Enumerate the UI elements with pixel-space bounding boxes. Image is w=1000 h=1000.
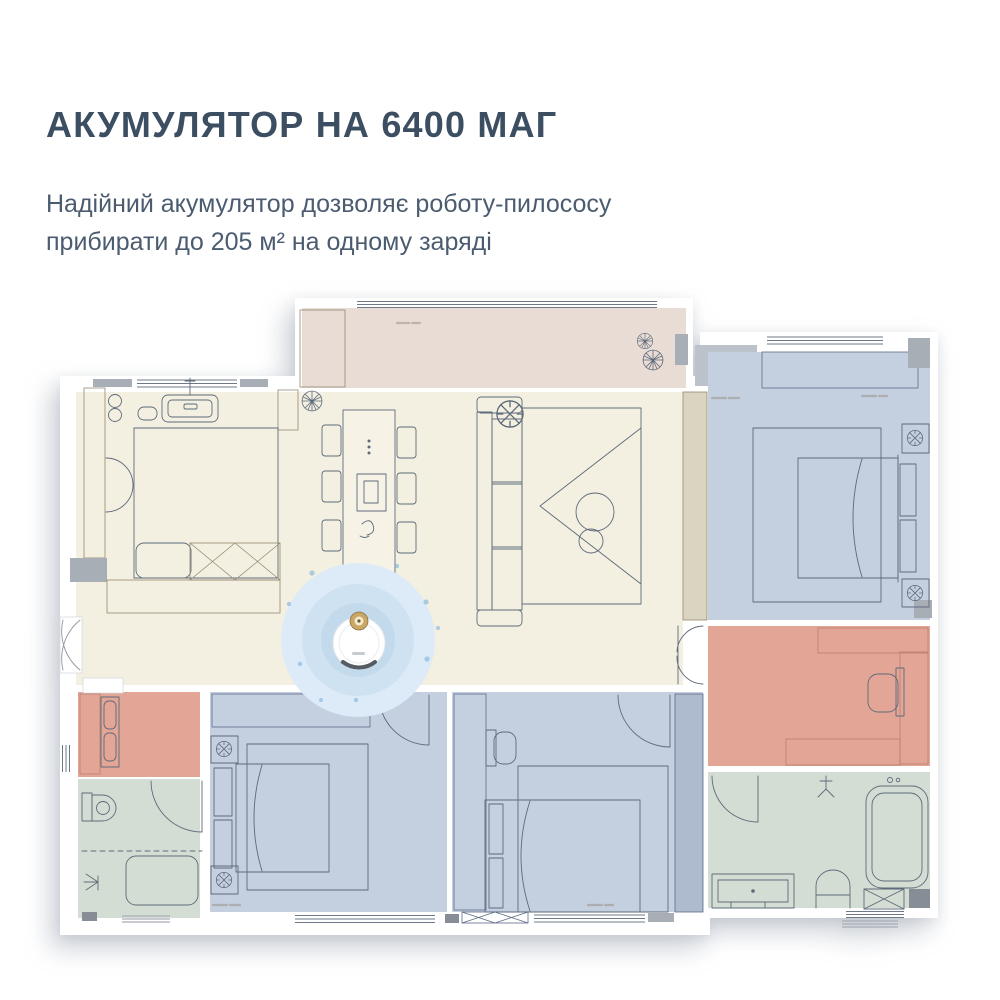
robot-logo <box>352 652 365 655</box>
plant-icon <box>643 350 663 370</box>
plan <box>60 298 938 935</box>
ceiling-light-icon <box>497 401 523 427</box>
lamp-icon <box>907 585 922 600</box>
room-bedroom-second <box>210 692 447 923</box>
entrance-door <box>60 617 82 673</box>
wall-niche <box>83 678 123 693</box>
room-bedroom-third <box>445 692 703 923</box>
wall-pier <box>70 558 107 582</box>
plant-icon <box>302 391 322 411</box>
wall-pier <box>675 334 688 365</box>
lamp-icon <box>907 430 922 445</box>
lamp-icon <box>216 741 231 756</box>
robot-lidar-turret <box>350 612 368 630</box>
tv-wardrobe-strip <box>683 392 707 620</box>
room-bathroom-main <box>708 772 930 927</box>
marketing-slide: АКУМУЛЯТОР НА 6400 МАГ Надійний акумулят… <box>0 0 1000 1000</box>
lamp-icon <box>216 872 231 887</box>
room-laundry <box>63 678 201 777</box>
plant-icon <box>637 333 652 348</box>
threshold <box>842 921 898 927</box>
room-bedroom-master <box>708 337 932 620</box>
dining-island <box>343 410 395 580</box>
floor-plan <box>0 0 1000 1000</box>
room-shower <box>78 779 202 922</box>
room-dressing <box>708 626 930 766</box>
